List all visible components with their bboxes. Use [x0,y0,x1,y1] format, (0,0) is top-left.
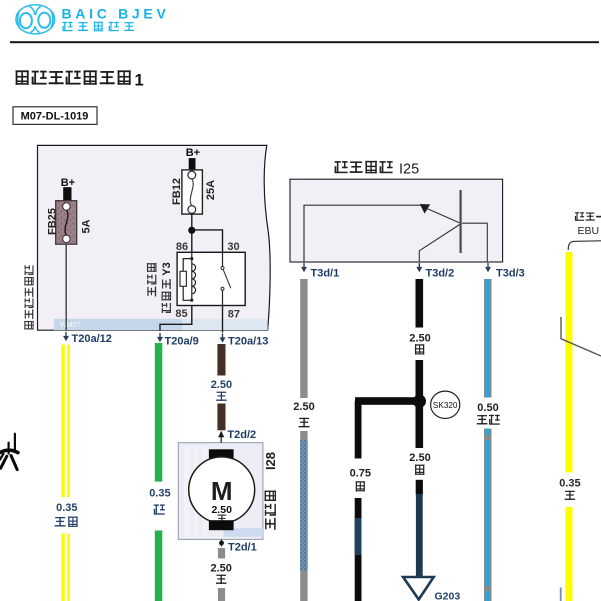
svg-text:T3d/2: T3d/2 [426,268,455,280]
svg-text:0.50: 0.50 [477,402,498,414]
svg-text:FB25: FB25 [47,208,59,235]
svg-text:SK320: SK320 [433,401,458,410]
svg-text:Y3: Y3 [161,262,173,275]
svg-text:M: M [211,476,233,506]
svg-text:T20a/9: T20a/9 [165,336,199,348]
svg-text:BAIC BJEV: BAIC BJEV [62,6,170,22]
svg-text:T2d/1: T2d/1 [228,542,257,554]
svg-text:2.50: 2.50 [211,379,232,391]
svg-text:0.35: 0.35 [149,488,170,500]
svg-text:87: 87 [228,309,240,321]
svg-text:2.50: 2.50 [409,452,430,464]
svg-text:85: 85 [175,308,187,320]
svg-text:0.35: 0.35 [56,502,77,514]
svg-text:30: 30 [227,241,239,253]
svg-text:0.75: 0.75 [350,467,371,479]
svg-text:M07-DL-1019: M07-DL-1019 [21,111,89,123]
svg-text:T20a/12: T20a/12 [72,333,112,345]
svg-text:5A: 5A [81,219,93,233]
svg-text:EBU: EBU [578,225,600,237]
svg-text:86: 86 [176,241,188,253]
svg-text:T2d/2: T2d/2 [227,429,256,441]
svg-text:T3d/3: T3d/3 [496,268,525,280]
svg-text:2.50: 2.50 [293,401,314,413]
svg-text:2.50: 2.50 [210,563,231,575]
svg-text:0.35: 0.35 [559,478,580,490]
svg-text:I25: I25 [399,162,419,178]
svg-text:2.50: 2.50 [211,504,232,516]
svg-text:G203: G203 [435,591,461,601]
svg-text:25A: 25A [205,180,217,200]
svg-text:2.50: 2.50 [409,332,430,344]
svg-text:B+: B+ [186,147,200,159]
svg-text:FB12: FB12 [171,178,183,205]
svg-text:WM07: WM07 [60,322,80,329]
svg-text:I28: I28 [263,452,278,470]
svg-text:1: 1 [135,72,144,90]
svg-text:T3d/1: T3d/1 [311,268,340,280]
svg-text:T20a/13: T20a/13 [228,335,268,347]
